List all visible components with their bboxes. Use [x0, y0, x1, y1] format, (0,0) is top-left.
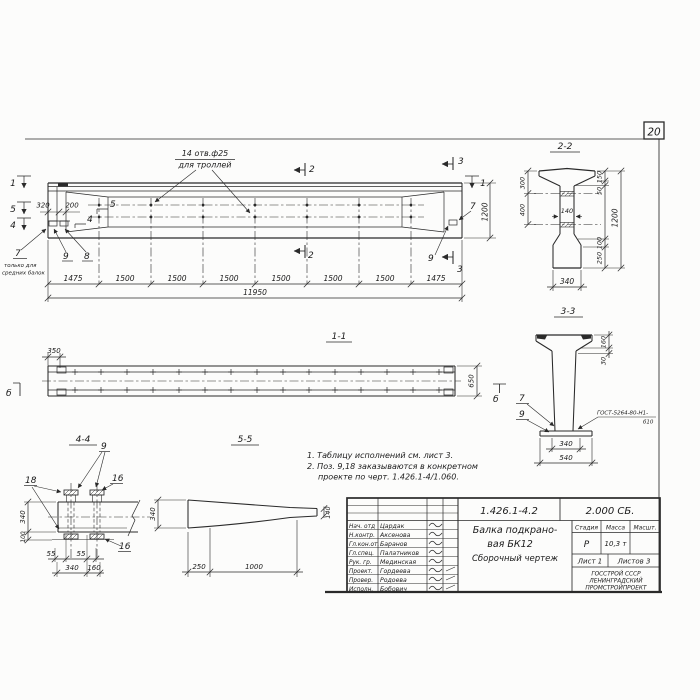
pos-mark-7-right: 7: [470, 202, 476, 212]
sheets-total: Листов 3: [617, 558, 651, 566]
dim-1000-sec55: 1000: [245, 563, 263, 571]
view-b-mark-right: б: [493, 395, 499, 405]
dim-300: 300: [519, 177, 527, 189]
col-mass-header: Масса: [606, 525, 625, 532]
dim-1200-sec: 1200: [611, 208, 620, 227]
dim-seg-6: 1500: [323, 274, 342, 283]
dim-seg-5: 1500: [271, 274, 290, 283]
row-role-2: Гл.кон.от.: [349, 542, 379, 548]
pos-mark-8: 8: [84, 252, 90, 262]
holes-callout-line2: для троллей: [178, 161, 232, 170]
doc-code: 2.000 СБ.: [586, 506, 635, 517]
col-scale-header: Масшт.: [633, 525, 656, 532]
row-name-4: Мединская: [380, 559, 416, 566]
section-2-2: 2-2 300 400 140 150 50 100 250 1200 340: [519, 142, 626, 291]
elevation-view: 14 отв.ф25 для троллей 2 2 3 3 1 5 4 1 3…: [2, 149, 496, 302]
section-5-5: 5-5 340 140 250 1000: [149, 435, 332, 577]
pos-mark-7: 7: [15, 249, 21, 259]
view-b-mark-left: б: [6, 389, 12, 399]
note-line-2: 2. Поз. 9,18 заказываются в конкретном: [307, 462, 478, 471]
section-4-4-title: 4-4: [76, 435, 91, 445]
dim-100: 100: [596, 237, 604, 249]
weld-gost-line1: ГОСТ-5264-80-Н1-: [597, 411, 648, 417]
dim-340-sec55: 340: [149, 507, 157, 521]
dim-seg-7: 1500: [375, 274, 394, 283]
section-3-3-title: 3-3: [561, 307, 576, 317]
org-line2: ЛЕНИНГРАДСКИЙ: [588, 578, 643, 585]
dim-seg-3: 1500: [167, 274, 186, 283]
row-role-7: Исполн.: [349, 587, 373, 593]
section-3-3: 3-3 160 30 7 9 ГОСТ-5264-80-Н1- б10 340 …: [516, 307, 656, 466]
pos7-note-line2: средних балок: [2, 271, 46, 277]
dim-200: 200: [65, 202, 79, 210]
dim-140-sec55: 140: [324, 506, 332, 518]
dim-160: 160: [600, 336, 608, 348]
drawing-scan: 20 14 отв.ф25 для троллей 2 2 3 3 1 5 4 …: [0, 0, 700, 700]
dim-540: 540: [559, 454, 573, 462]
mass-value: 10,3 т: [605, 540, 628, 548]
org-line3: ПРОМСТРОЙПРОЕКТ: [585, 585, 647, 592]
dim-seg-8: 1475: [426, 274, 445, 283]
cut-mark-4-left: 4: [10, 221, 16, 231]
pos-7-sec33: 7: [519, 394, 525, 404]
row-name-0: Цардак: [380, 523, 405, 530]
stage-value: Р: [584, 540, 590, 550]
section-4-4: 4-4 9 18 16 16 340 100 5: [19, 435, 150, 577]
row-name-5: Гордеева: [380, 568, 411, 575]
row-role-3: Гл.спец.: [349, 551, 374, 557]
row-name-7: Бобович: [380, 585, 407, 593]
section-2-2-title: 2-2: [558, 142, 573, 152]
cut-mark-5-left: 5: [10, 205, 16, 215]
section-5-5-title: 5-5: [238, 435, 253, 445]
dim-150: 150: [596, 171, 604, 183]
dim-350: 350: [47, 347, 61, 355]
dim-seg-4: 1500: [219, 274, 238, 283]
page-number: 20: [647, 127, 661, 139]
dim-320: 320: [36, 202, 50, 210]
row-role-6: Провер.: [349, 578, 373, 584]
dim-30: 30: [600, 357, 608, 365]
dim-250-sec55: 250: [192, 563, 206, 571]
drawing-sheet: 20 14 отв.ф25 для троллей 2 2 3 3 1 5 4 …: [0, 0, 700, 700]
pos-mark-4: 4: [87, 215, 93, 225]
embed-plate-mark: [58, 184, 68, 187]
dim-340-sec22: 340: [560, 277, 575, 286]
row-name-1: Аксенова: [379, 532, 411, 539]
cut-mark-1-right: 1: [480, 179, 486, 189]
dim-340-sec44: 340: [19, 510, 27, 524]
plan-view-1-1: 1-1 350 650 б б: [6, 332, 506, 405]
section-1-1-title: 1-1: [332, 332, 347, 342]
dim-1200-elev: 1200: [481, 202, 490, 221]
cut-mark-1-left: 1: [10, 179, 16, 189]
pos7-note-line1: только для: [4, 263, 37, 269]
pos-16-top: 16: [112, 474, 124, 484]
org-line1: ГОССТРОЙ СССР: [591, 571, 641, 578]
dim-340-sec33: 340: [559, 440, 573, 448]
dim-55-b: 55: [77, 550, 86, 558]
row-name-3: Палатников: [380, 550, 419, 557]
drawing-title-line1: Балка подкрано-: [473, 525, 558, 536]
pos-mark-9-right: 9: [428, 254, 434, 264]
dim-160-sec44: 160: [87, 564, 101, 572]
notes: 1. Таблицу исполнений см. лист 3. 2. Поз…: [307, 451, 478, 482]
cut-mark-2-top: 2: [309, 165, 315, 175]
note-line-1: 1. Таблицу исполнений см. лист 3.: [307, 451, 453, 460]
dim-650: 650: [468, 374, 476, 388]
cut-mark-2-bottom: 2: [308, 251, 314, 261]
dim-140-web: 140: [561, 207, 573, 215]
title-block: 1.426.1-4.2 2.000 СБ. Балка подкрано- ва…: [347, 498, 660, 593]
dim-340-b-sec44: 340: [65, 564, 79, 572]
pos-mark-5: 5: [110, 200, 116, 210]
row-role-4: Рук. гр.: [349, 560, 372, 566]
row-role-0: Нач. отд: [349, 524, 375, 530]
row-name-6: Родоева: [380, 577, 407, 584]
doc-number: 1.426.1-4.2: [480, 506, 538, 517]
dim-seg-1: 1475: [63, 274, 82, 283]
note-line-3: проекте по черт. 1.426.1-4/1.060.: [318, 473, 459, 482]
weld-gost-line2: б10: [643, 420, 654, 426]
dim-50: 50: [596, 187, 604, 195]
drawing-title-line2: вая БК12: [487, 539, 533, 550]
pos-18-sec44: 18: [25, 476, 37, 486]
dim-250: 250: [596, 252, 604, 264]
pos-mark-9: 9: [63, 252, 69, 262]
col-stage-header: Стадия: [575, 525, 598, 532]
dim-100-sec44: 100: [20, 531, 27, 543]
row-role-1: Н.контр.: [349, 533, 375, 539]
dim-seg-2: 1500: [115, 274, 134, 283]
pos-9-sec44: 9: [101, 442, 107, 452]
dim-total: 11950: [243, 288, 267, 297]
dim-400: 400: [519, 204, 527, 216]
cut-mark-3-top: 3: [458, 157, 464, 167]
dim-55-a: 55: [47, 550, 56, 558]
holes-callout-line1: 14 отв.ф25: [182, 149, 229, 158]
pos-9-sec33: 9: [519, 410, 525, 420]
row-name-2: Баранов: [380, 541, 408, 548]
sheet-number: Лист 1: [577, 558, 602, 566]
row-role-5: Проект.: [349, 569, 373, 575]
pos-16-bottom: 16: [119, 542, 131, 552]
drawing-title-line3: Сборочный чертеж: [472, 554, 558, 564]
